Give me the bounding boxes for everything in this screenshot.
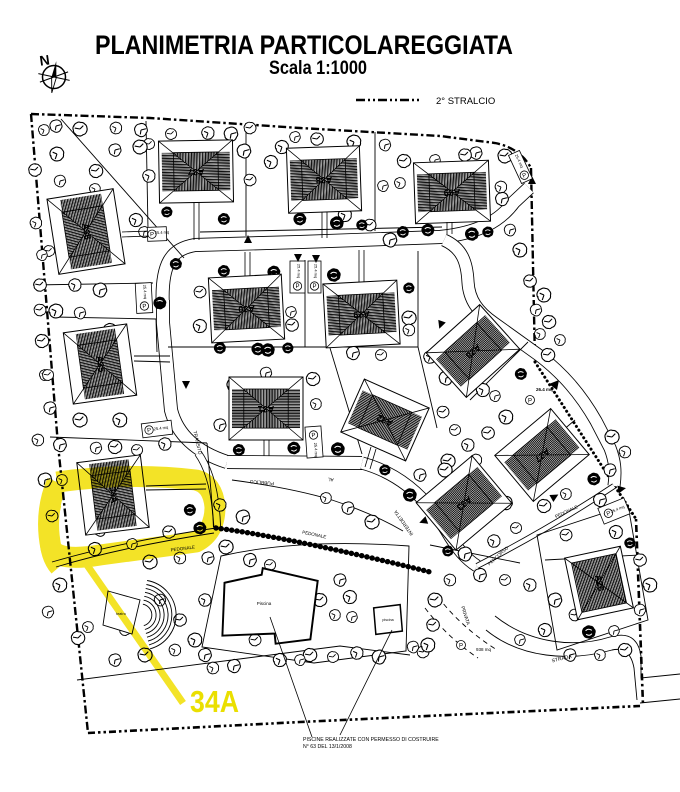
svg-text:A37: A37 [188,167,205,177]
svg-text:938 mq: 938 mq [476,647,492,652]
svg-text:34A: 34A [108,486,120,504]
svg-text:P: P [147,428,152,434]
svg-text:PISCINE REALIZZATE CON PERMESS: PISCINE REALIZZATE CON PERMESSO DI COSTR… [303,737,439,743]
svg-text:P: P [295,284,299,290]
svg-text:P: P [528,399,532,405]
svg-text:N° 63 DEL 13/1/2008: N° 63 DEL 13/1/2008 [303,744,352,750]
svg-text:P: P [312,284,316,290]
svg-text:P: P [311,433,315,439]
svg-text:P: P [142,304,146,310]
svg-text:piscina: piscina [382,618,393,622]
svg-text:A39: A39 [444,187,461,198]
svg-text:P: P [459,644,463,650]
svg-text:A38: A38 [316,175,333,186]
svg-text:A29: A29 [353,309,370,320]
svg-text:Piscina: Piscina [257,601,272,606]
svg-text:34A: 34A [190,684,239,719]
svg-text:AL: AL [327,476,334,483]
svg-text:25.4 mq: 25.4 mq [314,264,319,278]
svg-text:A31: A31 [258,404,275,414]
svg-text:25.4 mq: 25.4 mq [313,442,319,457]
svg-text:P: P [150,232,154,238]
svg-text:PLANIMETRIA PARTICOLAREGGIATA: PLANIMETRIA PARTICOLAREGGIATA [95,30,513,60]
svg-text:25.4 mq: 25.4 mq [142,285,148,300]
svg-text:A30: A30 [238,304,255,315]
svg-text:2° STRALCIO: 2° STRALCIO [436,96,495,107]
svg-text:26.4 mq: 26.4 mq [536,387,553,392]
svg-text:25.4 mq: 25.4 mq [297,264,302,278]
svg-text:25.4 mq: 25.4 mq [155,230,170,236]
svg-text:Scala 1:1000: Scala 1:1000 [269,57,367,79]
